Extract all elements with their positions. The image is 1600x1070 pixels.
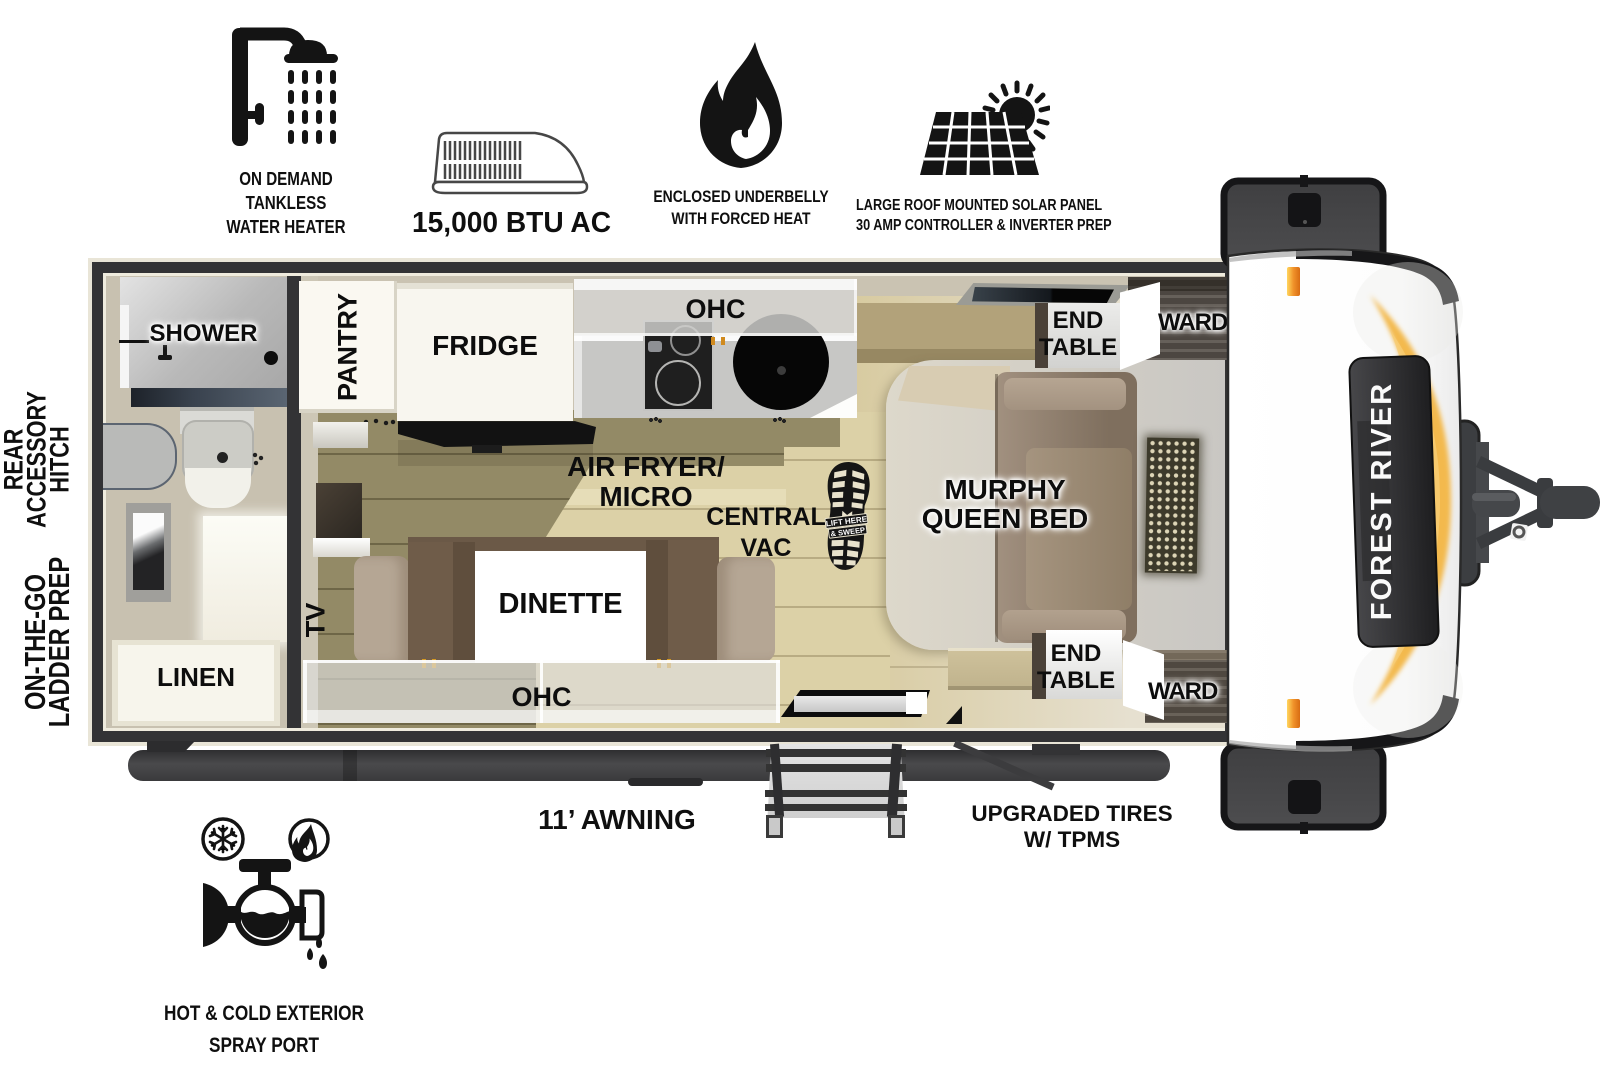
- svg-text:FOREST RIVER: FOREST RIVER: [1366, 382, 1398, 620]
